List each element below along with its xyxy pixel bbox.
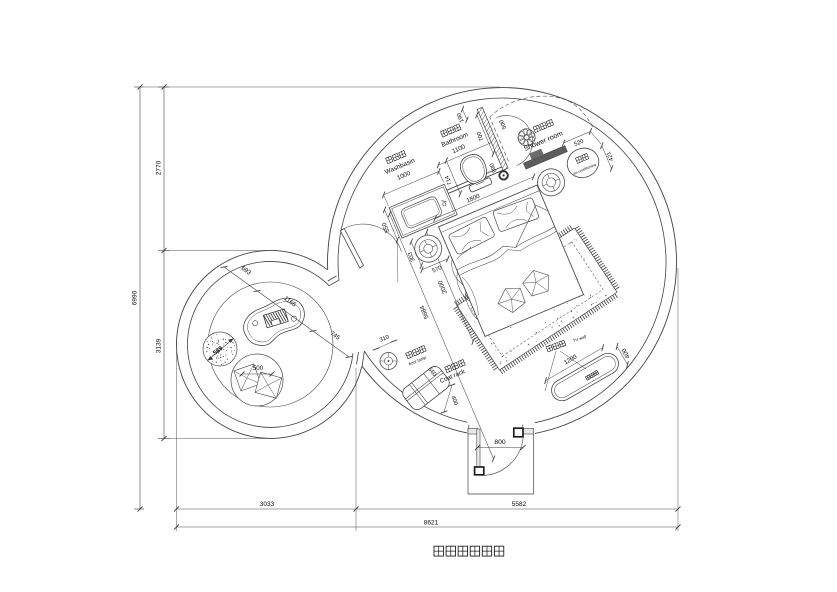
svg-text:5582: 5582 xyxy=(512,501,527,508)
svg-text:3139: 3139 xyxy=(156,338,163,353)
svg-text:800: 800 xyxy=(494,439,506,446)
svg-text:3033: 3033 xyxy=(260,501,275,508)
svg-text:8621: 8621 xyxy=(424,520,439,527)
svg-text:2770: 2770 xyxy=(156,160,163,175)
svg-text:500: 500 xyxy=(253,365,264,372)
svg-text:6990: 6990 xyxy=(132,290,139,305)
